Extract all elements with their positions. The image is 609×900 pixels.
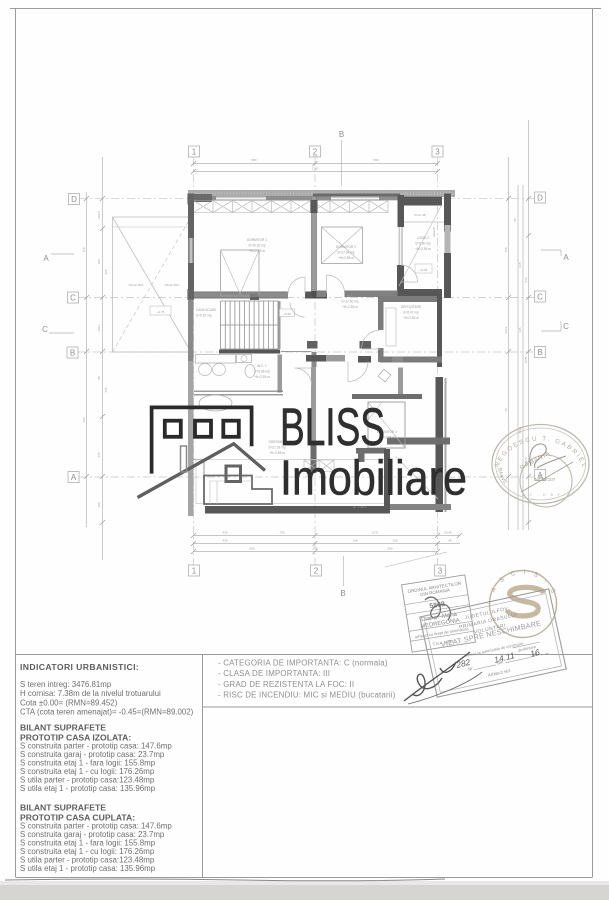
svg-text:D: D: [537, 194, 543, 203]
svg-text:S=20.32 mp: S=20.32 mp: [248, 244, 266, 248]
svg-text:+H=2.55 m: +H=2.55 m: [338, 256, 354, 260]
svg-text:C: C: [537, 293, 543, 302]
svg-text:S=6.06 mp: S=6.06 mp: [254, 370, 270, 374]
svg-text:S=9.32 mp: S=9.32 mp: [196, 314, 212, 318]
svg-text:3: 3: [438, 567, 443, 576]
svg-text:580: 580: [251, 158, 256, 162]
svg-text:175: 175: [312, 547, 317, 551]
svg-text:CASA SCARII: CASA SCARII: [196, 308, 216, 312]
svg-text:A: A: [71, 473, 77, 482]
svg-text:+0.95: +0.95: [283, 312, 291, 316]
svg-text:BILANT SUPRAFETE: BILANT SUPRAFETE: [20, 723, 106, 733]
svg-text:DEPOZITARE: DEPOZITARE: [401, 305, 421, 309]
svg-text:1513: 1513: [97, 324, 101, 331]
svg-text:C: C: [70, 294, 76, 303]
svg-text:430: 430: [82, 247, 86, 252]
svg-text:W.C. 1: W.C. 1: [257, 364, 267, 368]
svg-text:90x210: 90x210: [432, 227, 436, 237]
svg-text:26.45: 26.45: [444, 531, 452, 535]
svg-text:+0.05: +0.05: [420, 268, 428, 272]
svg-text:B C - D.B.F: B C - D.B.F: [522, 493, 562, 497]
svg-text:235: 235: [104, 387, 108, 392]
svg-text:446: 446: [82, 417, 86, 422]
svg-text:S=6.30 mp: S=6.30 mp: [415, 242, 431, 246]
svg-text:430: 430: [222, 531, 227, 535]
svg-text:S utila etaj 1 - prototip casa: S utila etaj 1 - prototip casa: 135.96mp: [20, 864, 156, 873]
svg-text:202.5: 202.5: [97, 211, 101, 219]
svg-text:9575: 9575: [524, 356, 528, 363]
svg-text:B: B: [537, 348, 542, 357]
svg-text:539: 539: [524, 277, 528, 282]
svg-text:LOGIE 2: LOGIE 2: [417, 236, 430, 240]
svg-text:430: 430: [222, 539, 227, 543]
svg-text:H cornisa: 7.38m de la nivelul: H cornisa: 7.38m de la nivelul trotuarul…: [20, 689, 161, 698]
svg-text:+H=2.55 m: +H=2.55 m: [403, 316, 419, 320]
svg-text:1: 1: [192, 148, 197, 157]
svg-text:2: 2: [314, 567, 319, 576]
svg-text:S=17.04 mp: S=17.04 mp: [337, 251, 355, 255]
svg-text:225: 225: [104, 269, 108, 274]
svg-text:BILANT SUPRAFETE: BILANT SUPRAFETE: [20, 803, 106, 813]
svg-text:148: 148: [352, 539, 357, 543]
svg-text:345: 345: [518, 327, 522, 332]
svg-text:B: B: [340, 589, 345, 598]
svg-text:180: 180: [97, 259, 101, 264]
svg-text:+H=2.55 m: +H=2.55 m: [415, 247, 431, 251]
svg-text:DORMITOR 1: DORMITOR 1: [247, 238, 267, 242]
svg-text:Pmd. 98: Pmd. 98: [414, 213, 426, 217]
svg-text:45: 45: [448, 539, 452, 543]
svg-text:16: 16: [504, 408, 508, 412]
svg-text:580: 580: [387, 547, 392, 551]
svg-text:S=12.50 mp: S=12.50 mp: [341, 300, 359, 304]
svg-text:S=6.47 mp: S=6.47 mp: [403, 311, 419, 315]
svg-text:DORMITOR 2: DORMITOR 2: [336, 245, 356, 249]
svg-text:235: 235: [392, 539, 397, 543]
svg-text:BLISS: BLISS: [280, 398, 385, 457]
svg-text:560: 560: [249, 547, 254, 551]
svg-text:55: 55: [513, 218, 517, 222]
svg-text:180: 180: [97, 502, 101, 507]
svg-text:1160: 1160: [312, 167, 319, 171]
svg-text:125: 125: [312, 154, 317, 158]
svg-text:sp. 1.98 m: sp. 1.98 m: [353, 505, 368, 509]
svg-text:+2.75: +2.75: [157, 310, 165, 314]
svg-text:Imobiliare: Imobiliare: [280, 452, 467, 506]
svg-text:B: B: [70, 349, 75, 358]
svg-text:- CATEGORIA DE IMPORTANTA: C (: - CATEGORIA DE IMPORTANTA: C (normala): [218, 659, 388, 668]
svg-text:S teren intreg: 3476.81mp: S teren intreg: 3476.81mp: [20, 680, 112, 689]
svg-text:S utila etaj 1 - prototip casa: S utila etaj 1 - prototip casa: 135.96mp: [20, 784, 156, 793]
svg-text:575: 575: [372, 531, 377, 535]
svg-text:C: C: [563, 322, 569, 331]
svg-text:85: 85: [97, 376, 101, 380]
svg-text:Panta 15%: Panta 15%: [165, 283, 180, 287]
svg-text:+H=2.55 m: +H=2.55 m: [249, 249, 265, 253]
svg-text:235: 235: [518, 262, 522, 267]
svg-text:B: B: [339, 130, 344, 139]
svg-text:Cota ±0.00= (RMN=89.452): Cota ±0.00= (RMN=89.452): [20, 699, 118, 708]
svg-text:1: 1: [192, 567, 197, 576]
svg-text:3: 3: [435, 148, 440, 157]
svg-text:575: 575: [97, 452, 101, 457]
svg-text:CTA (cota teren amenajat)= -0.: CTA (cota teren amenajat)= -0.45=(RMN=89…: [20, 708, 194, 717]
svg-text:430: 430: [504, 247, 508, 252]
svg-text:A: A: [43, 254, 49, 263]
svg-text:Panta 15%: Panta 15%: [129, 283, 144, 287]
svg-text:+H=2.55 m: +H=2.55 m: [254, 375, 270, 379]
svg-text:HOL: HOL: [347, 294, 354, 298]
svg-text:+H=2.55 m: +H=2.55 m: [342, 305, 358, 309]
svg-text:- CLASA DE IMPORTANTA: III: - CLASA DE IMPORTANTA: III: [218, 669, 330, 678]
svg-text:- RISC DE INCENDIU: MIC si MED: - RISC DE INCENDIU: MIC si MEDIU (bucata…: [218, 691, 396, 700]
svg-text:580: 580: [373, 158, 378, 162]
svg-text:C: C: [42, 325, 48, 334]
svg-text:795: 795: [279, 531, 284, 535]
svg-text:INDICATORI URBANISTICI:: INDICATORI URBANISTICI:: [20, 662, 139, 672]
svg-text:D: D: [71, 195, 77, 204]
svg-text:- GRAD DE REZISTENTA LA FOC: I: - GRAD DE REZISTENTA LA FOC: II: [218, 680, 354, 689]
svg-text:1623: 1623: [504, 326, 508, 333]
svg-text:A: A: [563, 253, 569, 262]
